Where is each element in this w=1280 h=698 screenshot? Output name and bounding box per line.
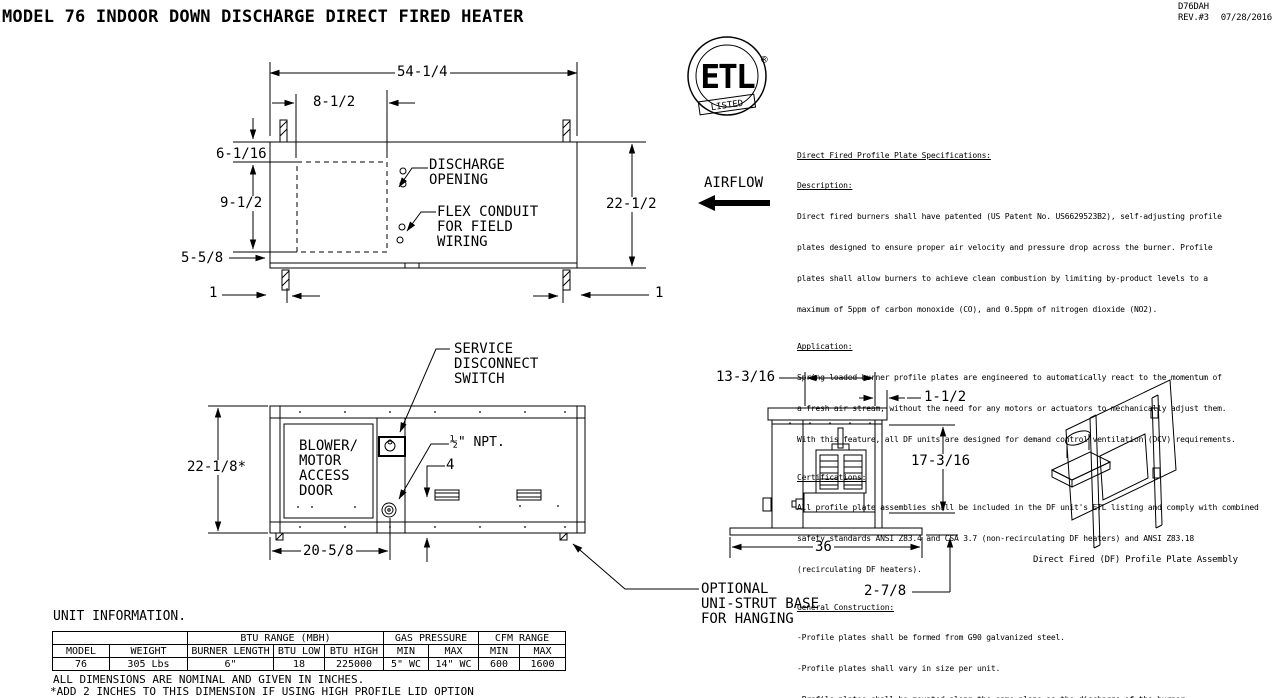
spec-line: safety standards ANSI Z83.4 and CSA 3.7 … xyxy=(797,534,1280,544)
spec-line: -Profile plates shall be formed from G90… xyxy=(797,633,1280,643)
spec-line: maximum of 5ppm of carbon monoxide (CO),… xyxy=(797,305,1280,315)
callout-flex-conduit: FLEX CONDUIT xyxy=(437,205,538,220)
callout-access-door: MOTOR xyxy=(299,454,341,469)
table-col-header: BTU LOW xyxy=(274,645,325,658)
airflow-arrow-icon xyxy=(698,195,770,211)
callout-flex-conduit: FOR FIELD xyxy=(437,220,513,235)
table-cell-gas-max: 14" WC xyxy=(429,658,479,671)
spec-line: plates designed to ensure proper air vel… xyxy=(797,243,1280,253)
callout-npt: ½" NPT. xyxy=(450,436,505,450)
unit-info-table: BTU RANGE (MBH) GAS PRESSURE CFM RANGE M… xyxy=(52,631,566,671)
dim-opening-width: 8-1/2 xyxy=(311,95,357,110)
table-cell-burner-length: 6" xyxy=(188,658,274,671)
unistrut-bracket xyxy=(282,270,289,290)
etl-listed-logo: ETL LISTED ® xyxy=(688,37,768,115)
service-disconnect-switch xyxy=(379,437,405,456)
callout-discharge-opening: DISCHARGE xyxy=(429,158,505,173)
dim-bottom-inset: 5-5/8 xyxy=(181,251,223,266)
drawing-sheet: ETL LISTED ® MODEL 76 INDOOR DOWN DISCHA… xyxy=(0,0,1280,698)
spec-line: Direct fired burners shall have patented… xyxy=(797,212,1280,222)
dim-npt-offset: 20-5/8 xyxy=(301,544,356,559)
spec-line: Spring-loaded burner profile plates are … xyxy=(797,373,1280,383)
note-high-profile-lid: *ADD 2 INCHES TO THIS DIMENSION IF USING… xyxy=(50,686,474,698)
table-cell-blank xyxy=(53,632,188,645)
npt-fitting xyxy=(382,503,396,517)
table-group-header-btu: BTU RANGE (MBH) xyxy=(188,632,384,645)
callout-access-door: ACCESS xyxy=(299,469,350,484)
revision-number: REV.#3 xyxy=(1178,13,1209,23)
unistrut-foot xyxy=(560,533,567,540)
unit-info-title: UNIT INFORMATION. xyxy=(53,610,186,624)
table-col-header: MODEL xyxy=(53,645,110,658)
spec-line: -Profile plates shall vary in size per u… xyxy=(797,664,1280,674)
doc-id: D76DAH xyxy=(1178,3,1209,12)
table-cell-cfm-min: 600 xyxy=(479,658,520,671)
louver-vent xyxy=(517,490,541,500)
table-cell-btu-high: 225000 xyxy=(325,658,384,671)
dim-foot-offset-left: 1 xyxy=(209,286,217,301)
dim-vent-offset: 4 xyxy=(446,458,454,473)
dim-foot-offset-right: 1 xyxy=(655,286,663,301)
spec-heading: Description: xyxy=(797,181,1280,191)
callout-discharge-opening: OPENING xyxy=(429,173,488,188)
etl-logo-text: ETL xyxy=(700,57,755,96)
dim-overall-width: 54-1/4 xyxy=(395,65,450,80)
table-col-header: MAX xyxy=(429,645,479,658)
spec-line: a fresh air stream, without the need for… xyxy=(797,404,1280,414)
table-row: 76 305 Lbs 6" 18 225000 5" WC 14" WC 600… xyxy=(53,658,566,671)
spec-line: All profile plate assemblies shall be in… xyxy=(797,503,1280,513)
airflow-label: AIRFLOW xyxy=(704,176,763,191)
callout-unistrut-base: FOR HANGING xyxy=(701,612,794,627)
unistrut-bracket xyxy=(280,120,287,142)
callout-service-disconnect: DISCONNECT xyxy=(454,357,538,372)
table-col-header: MAX xyxy=(520,645,566,658)
callout-unistrut-base: OPTIONAL xyxy=(701,582,768,597)
spec-heading: Application: xyxy=(797,342,1280,352)
table-group-header-gas: GAS PRESSURE xyxy=(384,632,479,645)
callout-access-door: DOOR xyxy=(299,484,333,499)
table-col-header: BURNER LENGTH xyxy=(188,645,274,658)
registered-mark-icon: ® xyxy=(761,53,768,66)
callout-access-door: BLOWER/ xyxy=(299,439,358,454)
unistrut-foot xyxy=(276,533,283,540)
unistrut-bracket xyxy=(563,270,570,290)
table-col-header: BTU HIGH xyxy=(325,645,384,658)
callout-service-disconnect: SERVICE xyxy=(454,342,513,357)
spec-heading: General Construction: xyxy=(797,603,1280,613)
dim-unit-height: 22-1/8* xyxy=(185,460,248,475)
table-cell-btu-low: 18 xyxy=(274,658,325,671)
spec-line: plates shall allow burners to achieve cl… xyxy=(797,274,1280,284)
page-title: MODEL 76 INDOOR DOWN DISCHARGE DIRECT FI… xyxy=(2,9,524,27)
spec-title: Direct Fired Profile Plate Specification… xyxy=(797,151,1280,161)
spec-line: (recirculating DF heaters). xyxy=(797,565,1280,575)
dim-top-width: 13-3/16 xyxy=(716,370,775,385)
revision-date: 07/28/2016 xyxy=(1221,13,1272,23)
note-dimensions: ALL DIMENSIONS ARE NOMINAL AND GIVEN IN … xyxy=(53,674,364,686)
table-cell-gas-min: 5" WC xyxy=(384,658,429,671)
dim-top-inset: 6-1/16 xyxy=(216,147,267,162)
table-cell-model: 76 xyxy=(53,658,110,671)
table-col-header: MIN xyxy=(479,645,520,658)
callout-flex-conduit: WIRING xyxy=(437,235,488,250)
spec-heading: Certifications: xyxy=(797,473,1280,483)
dim-opening-depth: 9-1/2 xyxy=(218,196,264,211)
table-col-header: MIN xyxy=(384,645,429,658)
table-col-header: WEIGHT xyxy=(110,645,188,658)
callout-service-disconnect: SWITCH xyxy=(454,372,505,387)
table-group-header-cfm: CFM RANGE xyxy=(479,632,566,645)
spec-text-block: Direct Fired Profile Plate Specification… xyxy=(797,130,1280,698)
louver-vent xyxy=(435,490,459,500)
table-cell-cfm-max: 1600 xyxy=(520,658,566,671)
table-cell-weight: 305 Lbs xyxy=(110,658,188,671)
spec-line: With this feature, all DF units are desi… xyxy=(797,435,1280,445)
revision-block: REV.#307/28/2016 xyxy=(1178,14,1272,23)
unistrut-bracket xyxy=(563,120,570,142)
dim-overall-depth: 22-1/2 xyxy=(604,197,659,212)
